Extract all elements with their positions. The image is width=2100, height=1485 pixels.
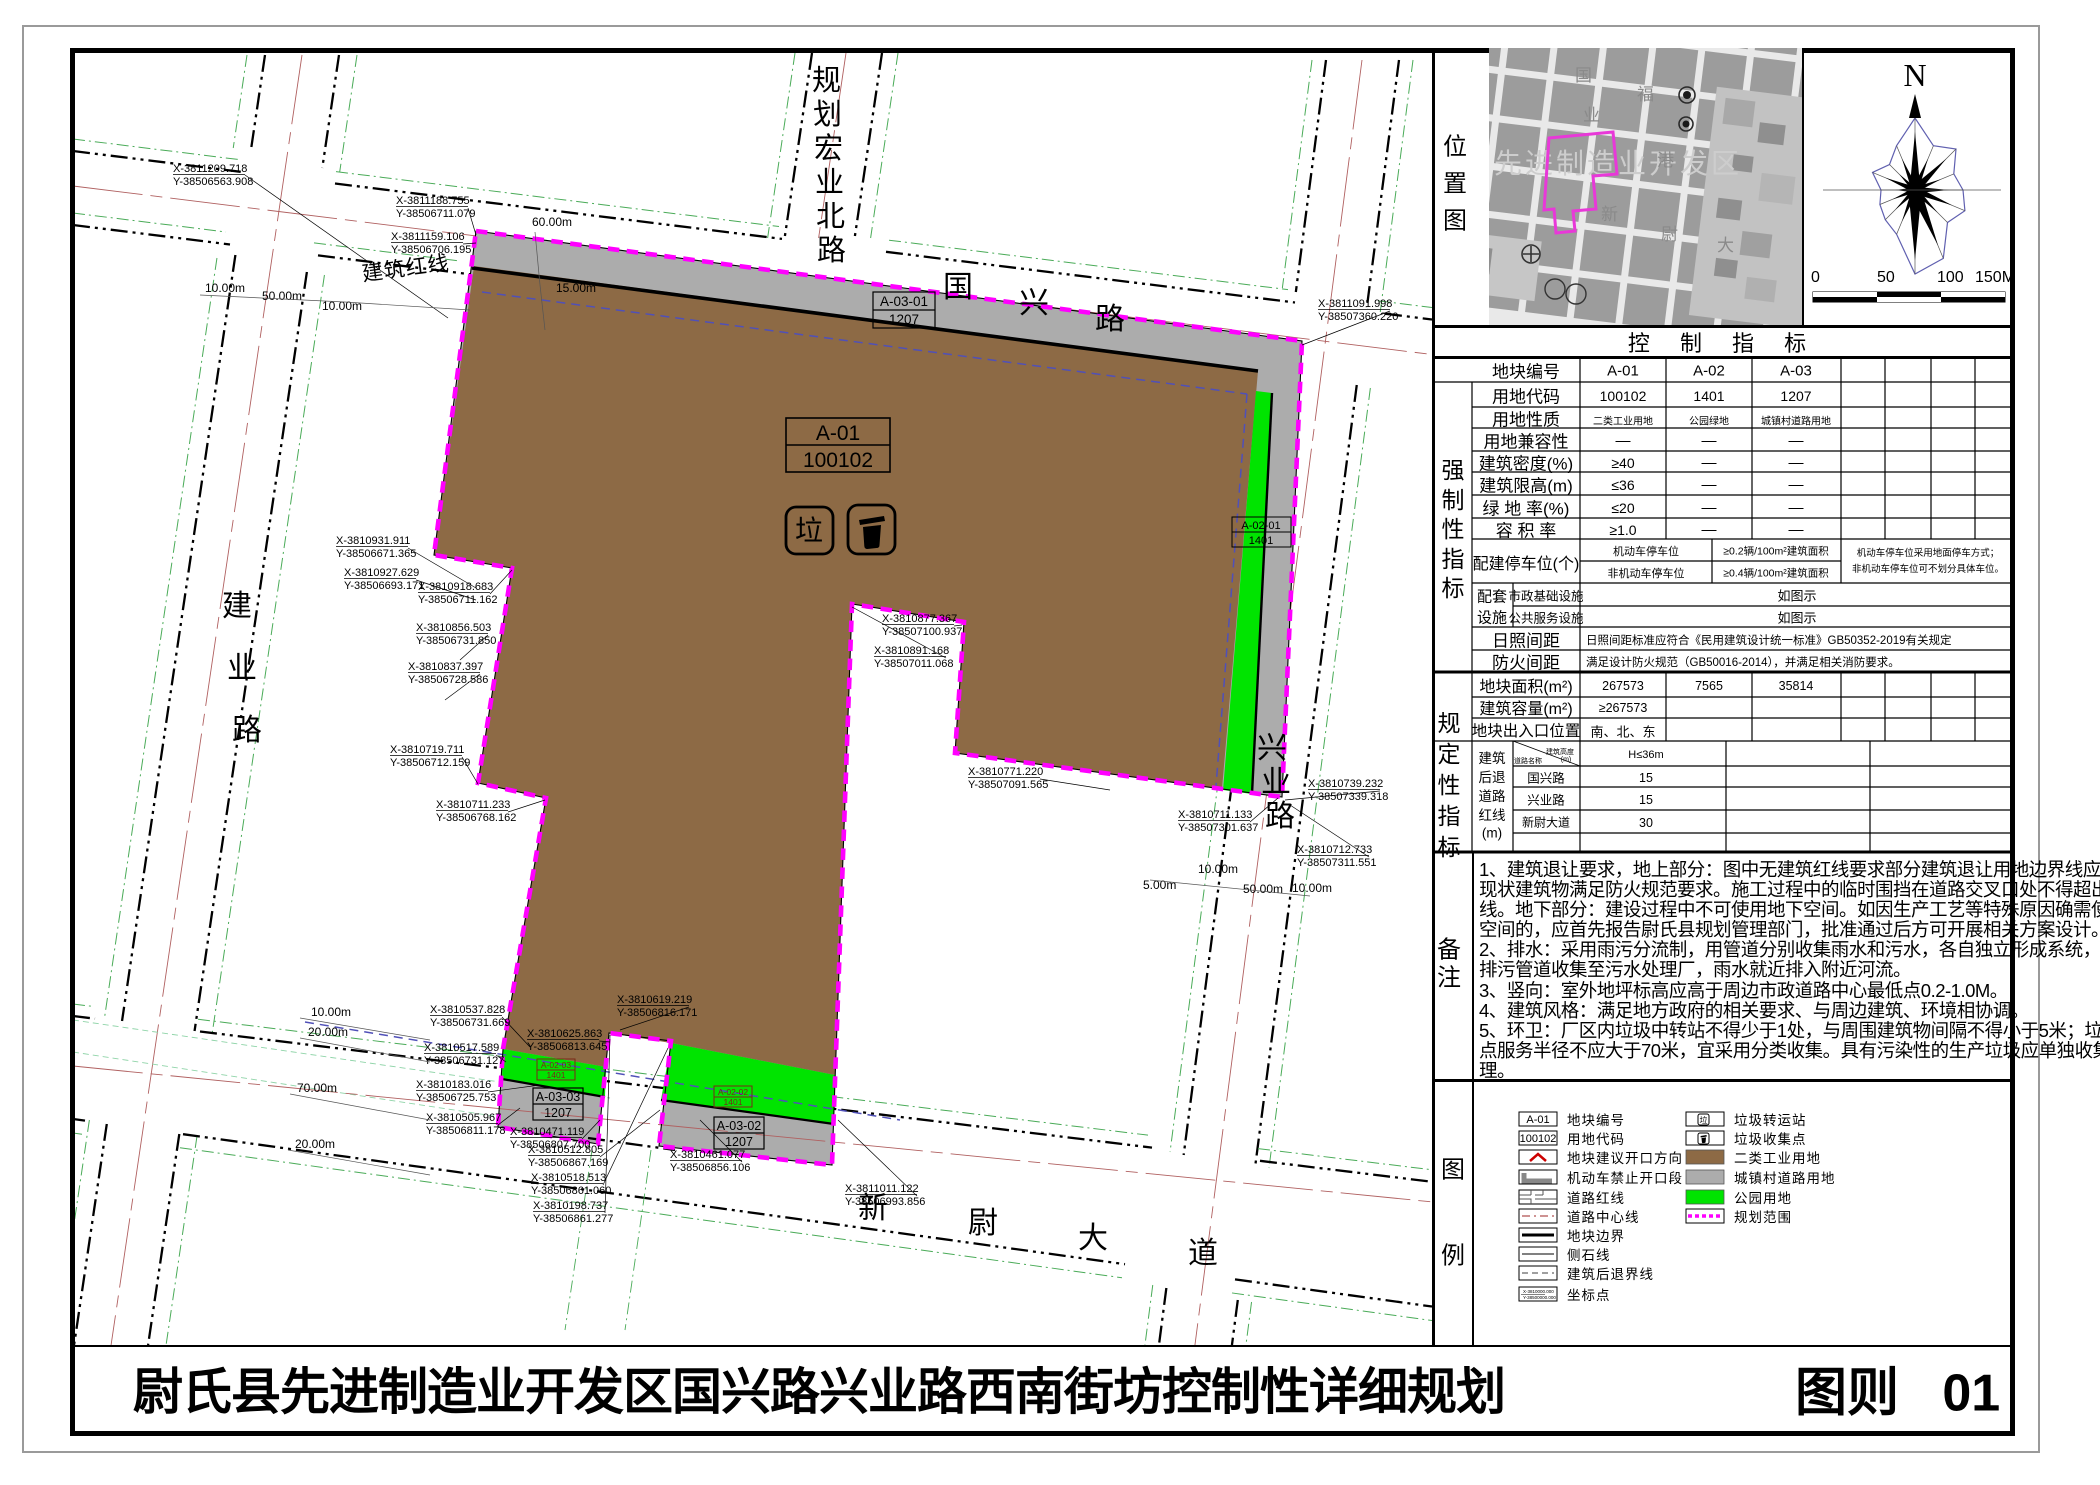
svg-text:X-3810000.000: X-3810000.000 — [1523, 1289, 1554, 1294]
svg-text:Y-38500000.000: Y-38500000.000 — [1523, 1295, 1556, 1300]
svg-text:100102: 100102 — [1520, 1133, 1557, 1145]
svg-text:垃: 垃 — [1700, 1115, 1708, 1125]
svg-text:A-01: A-01 — [1526, 1114, 1549, 1126]
